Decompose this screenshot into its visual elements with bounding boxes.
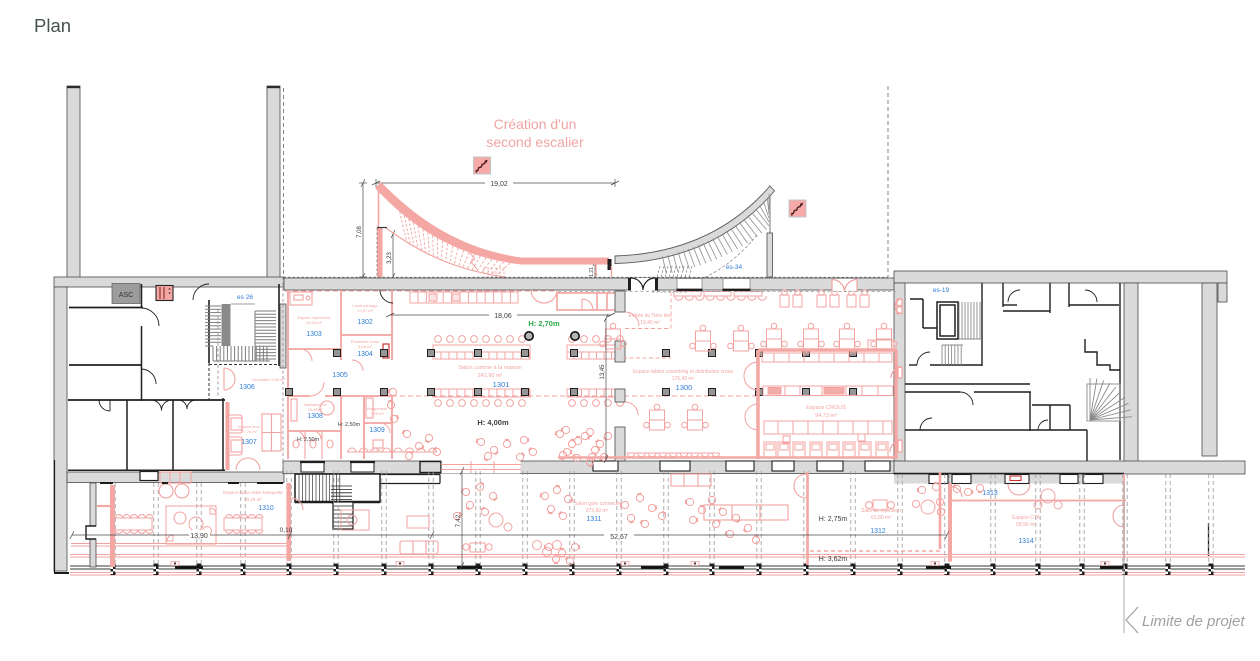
svg-text:13,90: 13,90 — [190, 533, 208, 540]
svg-text:Plan: Plan — [34, 15, 71, 36]
svg-text:Salon comme à la maison: Salon comme à la maison — [458, 365, 521, 371]
svg-text:1312: 1312 — [870, 528, 886, 535]
svg-text:1308: 1308 — [307, 413, 323, 420]
svg-text:13,45: 13,45 — [600, 364, 606, 380]
svg-text:1,21: 1,21 — [589, 267, 595, 277]
svg-text:es 26: es 26 — [237, 294, 253, 301]
svg-text:1309: 1309 — [369, 427, 385, 434]
svg-text:<9,07 m²: <9,07 m² — [357, 308, 374, 313]
svg-text:Création d'un: Création d'un — [494, 116, 577, 132]
svg-text:272,60 m²: 272,60 m² — [586, 508, 609, 514]
svg-text:242,90 m²: 242,90 m² — [478, 373, 503, 379]
svg-text:es-19: es-19 — [933, 287, 950, 294]
svg-text:1314: 1314 — [1018, 538, 1034, 545]
svg-text:H: 2,50m: H: 2,50m — [338, 422, 361, 428]
svg-text:1300: 1300 — [676, 383, 693, 392]
svg-text:18,06: 18,06 — [494, 313, 512, 320]
svg-text:H: 2,70m: H: 2,70m — [528, 319, 560, 328]
svg-text:19,40 m²: 19,40 m² — [640, 320, 660, 326]
svg-text:19,02: 19,02 — [490, 181, 508, 188]
svg-text:61,80 m²: 61,80 m² — [871, 515, 891, 521]
svg-text:3,25 m²: 3,25 m² — [368, 449, 382, 453]
svg-text:H: 2,50m: H: 2,50m — [297, 437, 320, 443]
svg-text:second escalier: second escalier — [486, 134, 584, 150]
svg-text:1310: 1310 — [258, 505, 274, 512]
svg-text:52,67: 52,67 — [610, 534, 628, 541]
svg-text:ASC: ASC — [119, 292, 133, 299]
svg-text:Circulation 9,86 m²: Circulation 9,86 m² — [251, 377, 285, 382]
svg-text:Espace repos table banquette: Espace repos table banquette — [223, 490, 283, 495]
svg-text:1303: 1303 — [306, 331, 322, 338]
svg-text:Espace CROUS: Espace CROUS — [806, 405, 846, 411]
svg-text:Salon gare connecté: Salon gare connecté — [574, 501, 620, 507]
svg-text:H: 3,62m: H: 3,62m — [819, 556, 848, 563]
svg-text:7,42: 7,42 — [455, 514, 462, 527]
svg-text:1306: 1306 — [239, 384, 255, 391]
svg-text:58,96 m²: 58,96 m² — [1016, 522, 1036, 528]
svg-text:1313: 1313 — [982, 490, 998, 497]
svg-text:Espace tables coworking et dis: Espace tables coworking et distribution … — [633, 369, 734, 375]
svg-text:H: 4,00m: H: 4,00m — [477, 418, 509, 427]
svg-text:1301: 1301 — [493, 380, 510, 389]
svg-text:Espace CTA: Espace CTA — [1012, 515, 1040, 521]
svg-text:176,43 m²: 176,43 m² — [672, 376, 695, 382]
svg-text:Salle de répétition: Salle de répétition — [861, 508, 901, 514]
svg-text:Entrée du Tiers lieu: Entrée du Tiers lieu — [628, 313, 671, 319]
svg-text:20,04 m²: 20,04 m² — [306, 320, 322, 325]
svg-text:0,10: 0,10 — [280, 527, 293, 534]
svg-text:1305: 1305 — [332, 372, 348, 379]
svg-text:1307: 1307 — [241, 439, 257, 446]
svg-text:30,29 m²: 30,29 m² — [244, 497, 262, 502]
svg-text:6,06 m²: 6,06 m² — [358, 344, 372, 349]
svg-text:H: 2,75m: H: 2,75m — [819, 516, 848, 523]
svg-text:3,23: 3,23 — [387, 252, 393, 264]
svg-text:1304: 1304 — [357, 351, 373, 358]
svg-text:20,92m²: 20,92m² — [308, 407, 323, 412]
svg-text:1311: 1311 — [586, 516, 601, 523]
svg-text:7,08: 7,08 — [357, 226, 363, 238]
svg-text:27,76 m²: 27,76 m² — [241, 429, 257, 434]
svg-text:1302: 1302 — [357, 319, 373, 326]
svg-text:Limite de projet: Limite de projet — [1142, 613, 1245, 630]
svg-text:es-34: es-34 — [726, 264, 743, 271]
svg-text:7,65 m²: 7,65 m² — [370, 411, 384, 416]
svg-text:94,73 m²: 94,73 m² — [815, 413, 837, 419]
